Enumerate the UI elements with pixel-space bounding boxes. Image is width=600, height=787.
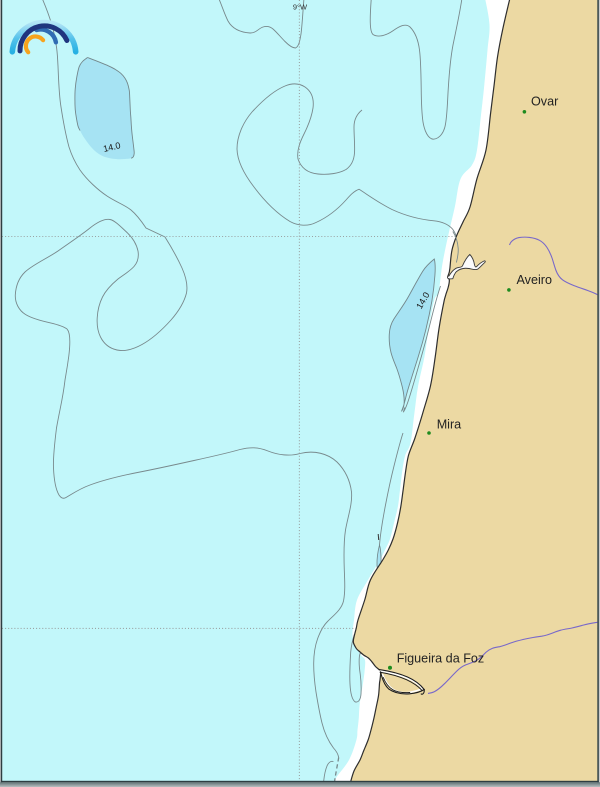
- svg-text:Ovar: Ovar: [531, 95, 558, 109]
- svg-text:Aveiro: Aveiro: [517, 273, 552, 287]
- svg-text:Mira: Mira: [437, 418, 462, 432]
- svg-text:9°W: 9°W: [293, 3, 308, 12]
- svg-text:Figueira da Foz: Figueira da Foz: [397, 652, 485, 666]
